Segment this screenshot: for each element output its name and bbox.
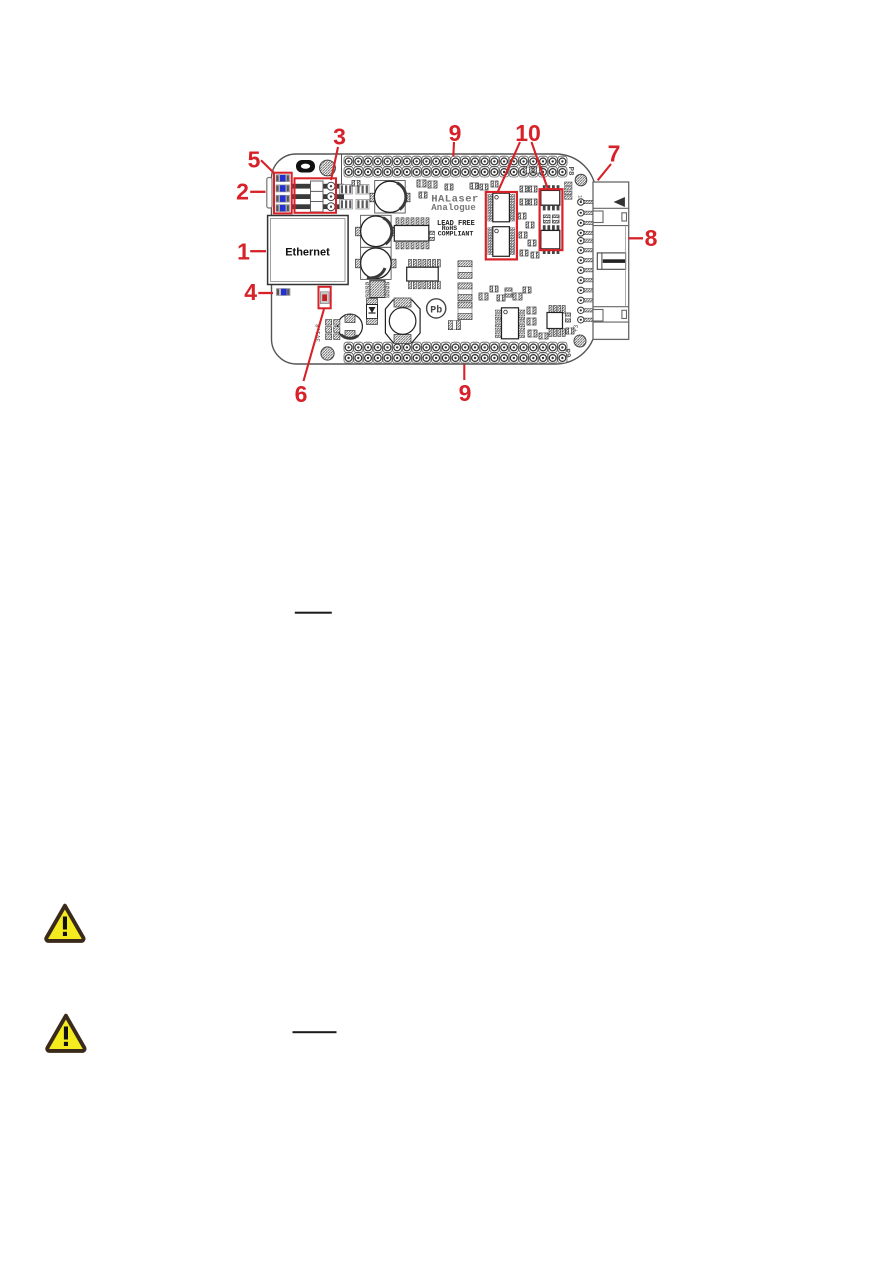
svg-text:P9: P9 [562, 348, 571, 359]
svg-text:7: 7 [608, 141, 621, 167]
svg-text:6: 6 [295, 381, 308, 407]
svg-text:+3: +3 [573, 324, 580, 332]
svg-text:12: 12 [577, 195, 584, 202]
svg-text:4: 4 [244, 279, 257, 305]
svg-text:Pb: Pb [430, 304, 442, 316]
svg-text:Analogue: Analogue [431, 203, 476, 213]
svg-text:COMPLIANT: COMPLIANT [438, 231, 474, 238]
svg-text:9: 9 [459, 380, 472, 406]
svg-text:Ethernet: Ethernet [285, 247, 330, 259]
svg-text:5: 5 [248, 147, 261, 173]
svg-text:2: 2 [236, 179, 249, 205]
svg-text:1: 1 [237, 239, 250, 265]
svg-text:P8: P8 [566, 167, 574, 177]
svg-text:8: 8 [645, 225, 658, 251]
svg-text:3: 3 [333, 124, 346, 150]
